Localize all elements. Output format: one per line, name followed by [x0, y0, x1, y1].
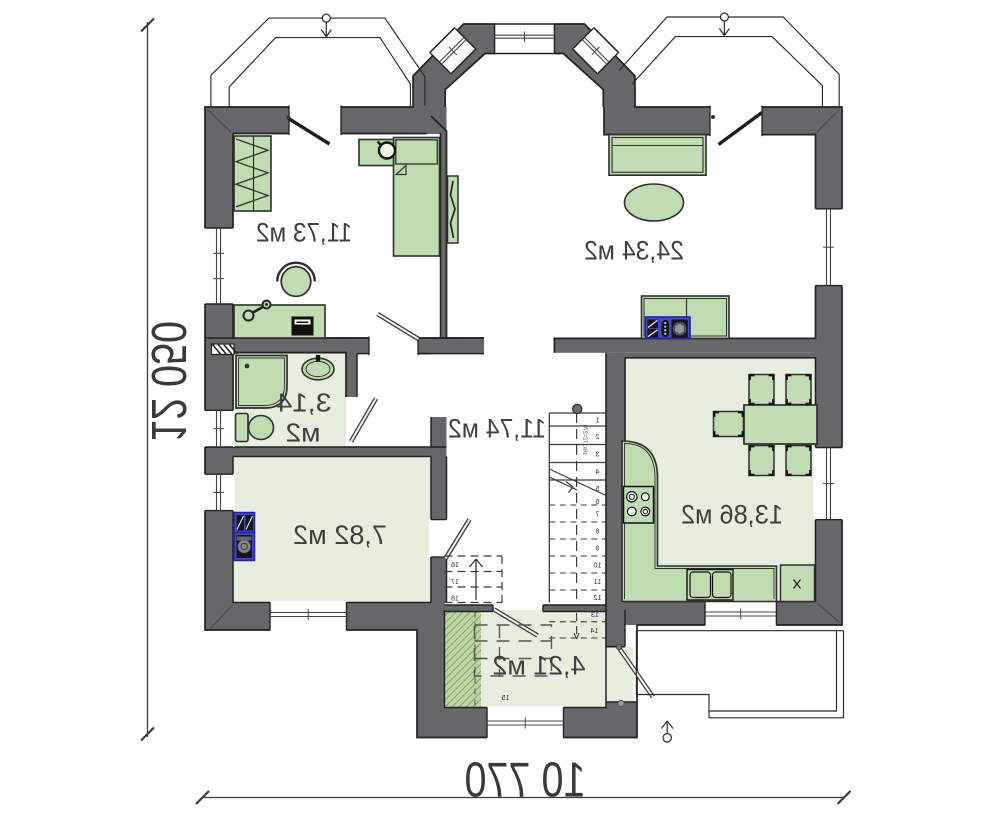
svg-text:7: 7 [596, 510, 600, 519]
svg-text:3,14: 3,14 [277, 388, 332, 418]
svg-text:1: 1 [596, 416, 600, 425]
svg-text:4: 4 [596, 467, 600, 476]
svg-text:15: 15 [502, 695, 510, 702]
svg-text:12 050: 12 050 [141, 321, 195, 442]
svg-text:14: 14 [591, 626, 599, 635]
svg-text:4,21 м2: 4,21 м2 [493, 651, 586, 681]
svg-text:9: 9 [596, 544, 600, 553]
svg-text:17: 17 [451, 577, 459, 586]
svg-text:11,74 м2: 11,74 м2 [448, 414, 546, 444]
svg-text:13: 13 [591, 610, 599, 619]
svg-text:18: 18 [451, 594, 459, 603]
svg-text:10: 10 [594, 561, 602, 570]
svg-text:24,34 м2: 24,34 м2 [584, 236, 684, 266]
svg-text:6: 6 [596, 497, 600, 506]
svg-text:10 770: 10 770 [465, 754, 586, 808]
svg-text:13,86 м2: 13,86 м2 [681, 500, 783, 530]
svg-text:2: 2 [596, 432, 600, 441]
svg-text:8: 8 [596, 527, 600, 536]
svg-text:5: 5 [596, 484, 600, 493]
svg-text:3: 3 [596, 450, 600, 459]
svg-text:16x172=270: 16x172=270 [582, 425, 588, 455]
svg-text:7,82 м2: 7,82 м2 [293, 520, 387, 550]
svg-text:11: 11 [594, 577, 601, 586]
svg-text:м2: м2 [286, 418, 321, 448]
svg-text:16: 16 [451, 560, 459, 569]
svg-text:12: 12 [594, 593, 602, 602]
svg-text:11,73 м2: 11,73 м2 [256, 218, 352, 248]
